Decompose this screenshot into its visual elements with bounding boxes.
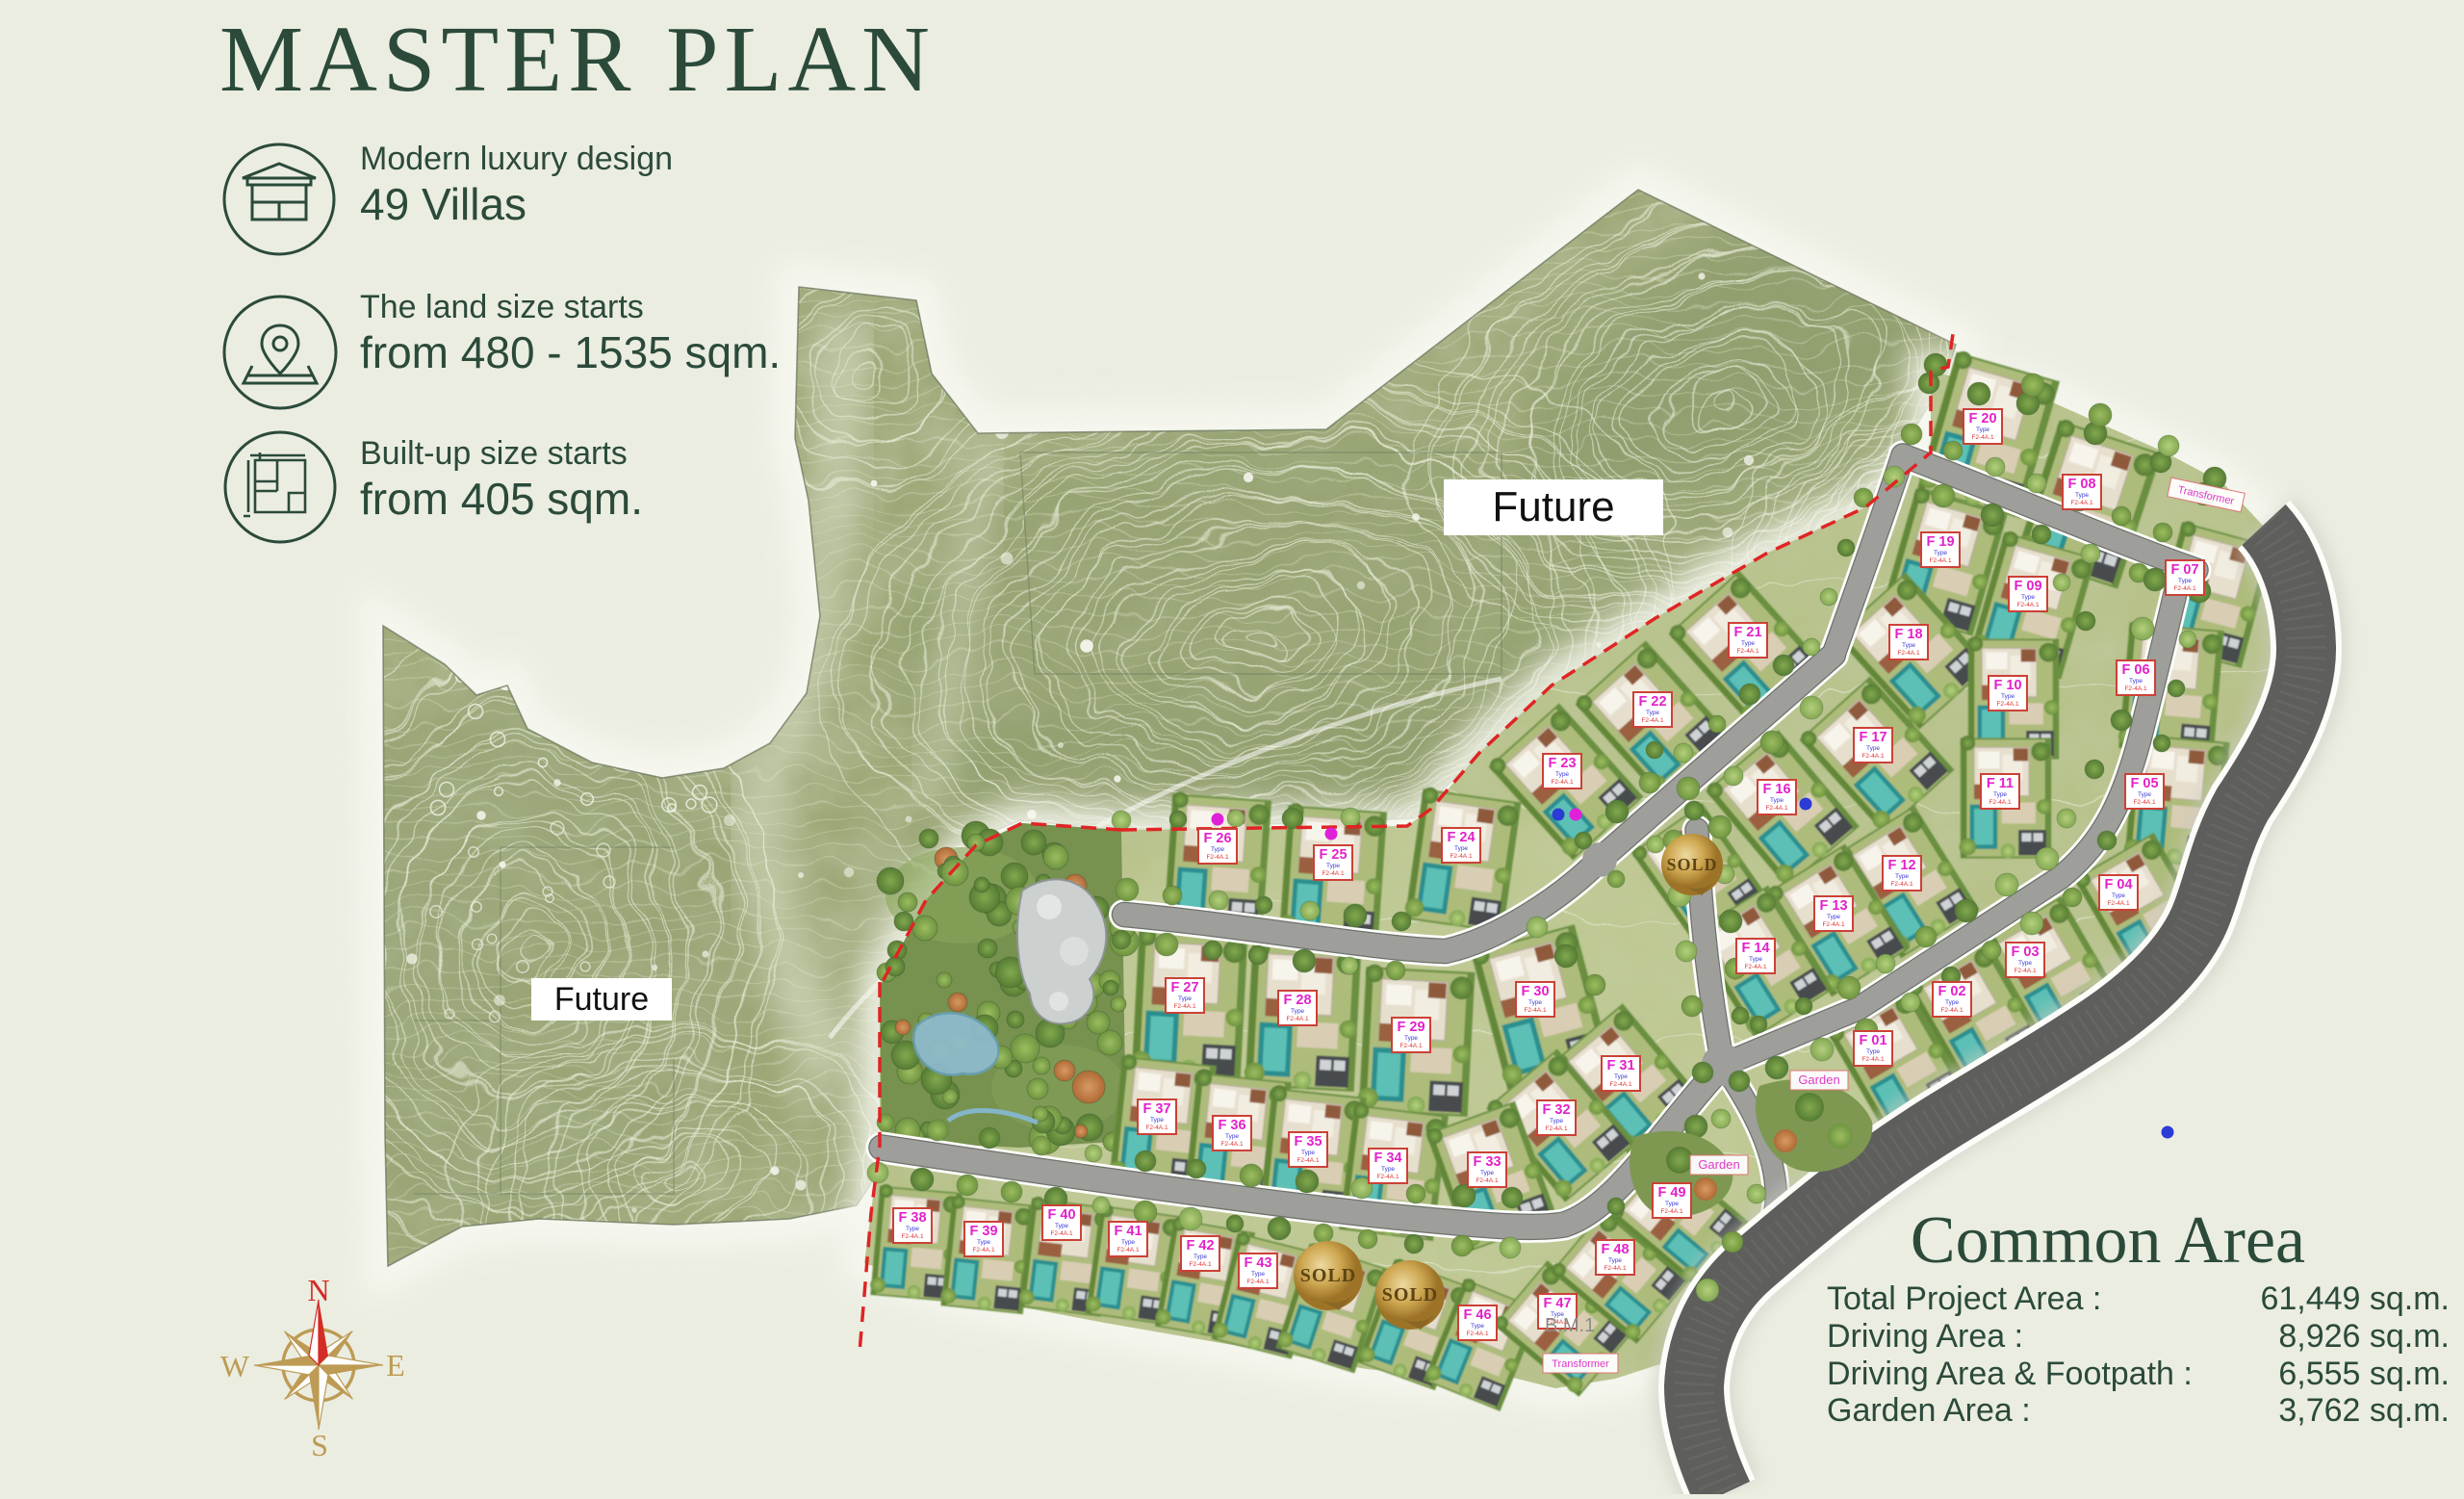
svg-text:F 28: F 28 [1283, 993, 1311, 1008]
svg-text:Type: Type [1866, 1048, 1880, 1055]
svg-text:F2-4A.1: F2-4A.1 [1604, 1265, 1627, 1272]
svg-text:F 48: F 48 [1601, 1242, 1629, 1257]
svg-text:F 25: F 25 [1319, 847, 1347, 863]
svg-text:F 46: F 46 [1463, 1307, 1491, 1323]
svg-text:Driving Area & Footpath :: Driving Area & Footpath : [1827, 1356, 2193, 1392]
svg-text:Type: Type [2001, 693, 2015, 700]
svg-text:F 34: F 34 [1373, 1150, 1401, 1166]
svg-text:F 21: F 21 [1733, 625, 1761, 640]
svg-text:Type: Type [1614, 1073, 1628, 1080]
svg-text:Garden Area :: Garden Area : [1827, 1392, 2031, 1429]
svg-text:Type: Type [1454, 845, 1468, 852]
svg-text:F 40: F 40 [1047, 1207, 1075, 1223]
svg-text:Type: Type [1251, 1271, 1265, 1278]
svg-text:Type: Type [2129, 678, 2143, 685]
svg-text:F2-4A.1: F2-4A.1 [2014, 968, 2037, 974]
svg-text:F2-4A.1: F2-4A.1 [1399, 1043, 1423, 1049]
svg-text:F2-4A.1: F2-4A.1 [2070, 500, 2093, 506]
svg-text:F 13: F 13 [1819, 898, 1847, 914]
svg-text:F2-4A.1: F2-4A.1 [1641, 717, 1664, 724]
svg-text:Type: Type [1404, 1035, 1418, 1042]
svg-text:3,762 sq.m.: 3,762 sq.m. [2278, 1392, 2450, 1429]
svg-text:Type: Type [1301, 1150, 1315, 1156]
svg-text:Type: Type [1528, 999, 1542, 1006]
svg-text:F 36: F 36 [1218, 1118, 1245, 1133]
svg-text:Type: Type [1741, 640, 1755, 647]
svg-text:F 05: F 05 [2130, 776, 2158, 791]
svg-text:6,555 sq.m.: 6,555 sq.m. [2278, 1356, 2450, 1392]
svg-text:F 10: F 10 [1993, 678, 2021, 693]
svg-text:SOLD: SOLD [1666, 855, 1717, 874]
svg-text:F2-4A.1: F2-4A.1 [1545, 1125, 1568, 1132]
svg-text:Type: Type [1895, 873, 1909, 880]
svg-text:F2-4A.1: F2-4A.1 [1822, 921, 1845, 928]
svg-text:Type: Type [2075, 492, 2089, 499]
svg-text:Type: Type [1150, 1117, 1164, 1124]
svg-text:F2-4A.1: F2-4A.1 [1989, 799, 2012, 806]
svg-text:F2-4A.1: F2-4A.1 [1929, 557, 1952, 564]
svg-text:Type: Type [1866, 745, 1880, 752]
svg-text:F2-4A.1: F2-4A.1 [1551, 779, 1574, 786]
svg-text:Driving Area :: Driving Area : [1827, 1318, 2023, 1355]
svg-text:F2-4A.1: F2-4A.1 [1940, 1007, 1963, 1014]
svg-text:W: W [220, 1349, 250, 1383]
svg-text:Type: Type [1555, 771, 1569, 778]
svg-text:F 35: F 35 [1294, 1134, 1322, 1150]
svg-text:Type: Type [1211, 846, 1224, 853]
svg-text:Type: Type [1827, 914, 1840, 920]
svg-text:F2-4A.1: F2-4A.1 [1376, 1174, 1399, 1180]
svg-text:61,449 sq.m.: 61,449 sq.m. [2260, 1280, 2450, 1317]
svg-text:F2-4A.1: F2-4A.1 [1116, 1247, 1140, 1253]
svg-text:F2-4A.1: F2-4A.1 [1286, 1016, 1309, 1022]
svg-text:Type: Type [2018, 960, 2032, 967]
svg-text:F2-4A.1: F2-4A.1 [1050, 1230, 1073, 1237]
svg-text:F2-4A.1: F2-4A.1 [2124, 685, 2147, 692]
svg-text:from 480 - 1535 sqm.: from 480 - 1535 sqm. [360, 327, 781, 377]
svg-text:F 42: F 42 [1186, 1238, 1214, 1253]
svg-text:SOLD: SOLD [1382, 1284, 1438, 1305]
svg-text:F2-4A.1: F2-4A.1 [1145, 1124, 1168, 1131]
svg-text:F2-4A.1: F2-4A.1 [1765, 805, 1788, 812]
svg-text:F 01: F 01 [1859, 1033, 1886, 1048]
svg-text:F 37: F 37 [1142, 1101, 1170, 1117]
svg-text:Type: Type [1902, 642, 1915, 649]
svg-text:F 43: F 43 [1244, 1255, 1271, 1271]
svg-text:Type: Type [1178, 995, 1192, 1002]
svg-text:F 04: F 04 [2104, 877, 2132, 892]
svg-text:F 16: F 16 [1762, 782, 1790, 797]
svg-text:F2-4A.1: F2-4A.1 [1450, 853, 1473, 860]
svg-text:F2-4A.1: F2-4A.1 [1322, 870, 1345, 877]
svg-text:F 20: F 20 [1968, 411, 1996, 426]
svg-text:F 27: F 27 [1170, 980, 1198, 995]
svg-text:F2-4A.1: F2-4A.1 [1890, 881, 1913, 888]
svg-text:Garden: Garden [1798, 1073, 1839, 1087]
svg-text:Type: Type [1934, 550, 1947, 556]
svg-text:Future: Future [1492, 483, 1614, 530]
svg-text:SOLD: SOLD [1300, 1265, 1356, 1286]
svg-text:E: E [386, 1348, 405, 1383]
svg-text:49 Villas: 49 Villas [360, 179, 526, 229]
svg-text:F 24: F 24 [1447, 830, 1475, 845]
svg-text:F 26: F 26 [1203, 831, 1231, 846]
svg-text:Type: Type [1193, 1253, 1207, 1260]
svg-text:F 49: F 49 [1657, 1185, 1685, 1201]
svg-text:F 12: F 12 [1887, 858, 1915, 873]
svg-text:Type: Type [1291, 1008, 1304, 1015]
svg-text:F2-4A.1: F2-4A.1 [1660, 1208, 1683, 1215]
svg-text:Type: Type [2112, 892, 2125, 899]
svg-text:Type: Type [1225, 1133, 1239, 1140]
svg-text:F2-4A.1: F2-4A.1 [1996, 701, 2019, 708]
svg-text:F2-4A.1: F2-4A.1 [1744, 964, 1767, 970]
svg-text:F 11: F 11 [1987, 776, 2014, 791]
svg-text:Type: Type [1749, 956, 1762, 963]
svg-text:F2-4A.1: F2-4A.1 [2016, 602, 2040, 608]
svg-text:Type: Type [2021, 594, 2035, 601]
svg-text:N: N [307, 1273, 329, 1307]
svg-text:Garden: Garden [1698, 1157, 1739, 1172]
svg-text:Total Project Area :: Total Project Area : [1827, 1280, 2101, 1317]
svg-text:F 47: F 47 [1543, 1296, 1571, 1311]
svg-text:F 22: F 22 [1638, 694, 1666, 710]
svg-text:F2-4A.1: F2-4A.1 [1971, 434, 1994, 441]
svg-text:MASTER PLAN: MASTER PLAN [219, 8, 936, 112]
svg-text:Common Area: Common Area [1911, 1203, 2305, 1278]
svg-text:F2-4A.1: F2-4A.1 [1524, 1007, 1547, 1014]
svg-text:8,926 sq.m.: 8,926 sq.m. [2278, 1318, 2450, 1355]
svg-text:F 02: F 02 [1938, 984, 1965, 999]
svg-text:F 18: F 18 [1894, 627, 1922, 642]
svg-text:Type: Type [1770, 797, 1784, 804]
svg-text:F 30: F 30 [1521, 984, 1549, 999]
svg-text:Future: Future [554, 981, 649, 1018]
svg-text:Type: Type [1381, 1166, 1395, 1173]
svg-text:F 03: F 03 [2011, 944, 2039, 960]
svg-text:F 17: F 17 [1859, 730, 1886, 745]
svg-text:S: S [311, 1428, 328, 1462]
svg-text:The land size starts: The land size starts [360, 289, 644, 325]
svg-text:Type: Type [1471, 1323, 1484, 1330]
svg-text:from 405 sqm.: from 405 sqm. [360, 474, 643, 524]
svg-text:F2-4A.1: F2-4A.1 [901, 1233, 924, 1240]
svg-text:Type: Type [1055, 1223, 1068, 1229]
svg-text:Type: Type [1993, 791, 2007, 798]
svg-text:Type: Type [906, 1226, 919, 1232]
svg-text:F2-4A.1: F2-4A.1 [1476, 1177, 1499, 1184]
svg-text:Type: Type [1550, 1118, 1563, 1124]
svg-text:F 29: F 29 [1397, 1020, 1424, 1035]
svg-text:F2-4A.1: F2-4A.1 [972, 1247, 995, 1253]
svg-text:Type: Type [1976, 426, 1989, 433]
svg-text:F2-4A.1: F2-4A.1 [2173, 585, 2196, 592]
svg-text:Type: Type [1646, 710, 1659, 716]
svg-text:F2-4A.1: F2-4A.1 [1173, 1003, 1196, 1010]
svg-text:Type: Type [1665, 1201, 1679, 1207]
svg-text:F2-4A.1: F2-4A.1 [1220, 1141, 1244, 1148]
svg-text:F 31: F 31 [1606, 1058, 1634, 1073]
svg-text:F2-4A.1: F2-4A.1 [1296, 1157, 1320, 1164]
svg-text:Type: Type [1945, 999, 1959, 1006]
svg-text:F2-4A.1: F2-4A.1 [1206, 854, 1229, 861]
svg-text:Type: Type [2138, 791, 2151, 798]
svg-text:F 19: F 19 [1926, 534, 1954, 550]
svg-text:F2-4A.1: F2-4A.1 [1466, 1331, 1489, 1337]
svg-text:Transformer: Transformer [1552, 1358, 1609, 1370]
svg-text:F 32: F 32 [1542, 1102, 1570, 1118]
svg-text:F 09: F 09 [2014, 579, 2041, 594]
svg-text:F2-4A.1: F2-4A.1 [1246, 1279, 1270, 1285]
svg-text:Built-up size starts: Built-up size starts [360, 435, 628, 472]
svg-text:F 08: F 08 [2067, 477, 2095, 492]
svg-text:F2-4A.1: F2-4A.1 [2107, 900, 2130, 907]
svg-text:F 38: F 38 [898, 1210, 926, 1226]
svg-text:Type: Type [2178, 578, 2192, 584]
svg-text:F 39: F 39 [969, 1224, 997, 1239]
svg-text:F 41: F 41 [1114, 1224, 1142, 1239]
svg-text:F2-4A.1: F2-4A.1 [1861, 753, 1885, 760]
svg-text:F2-4A.1: F2-4A.1 [1189, 1261, 1212, 1268]
svg-text:Type: Type [1121, 1239, 1135, 1246]
svg-text:F 14: F 14 [1741, 941, 1769, 956]
svg-text:F2-4A.1: F2-4A.1 [1609, 1081, 1632, 1088]
svg-text:F 23: F 23 [1548, 756, 1576, 771]
svg-text:Type: Type [1608, 1257, 1622, 1264]
svg-text:F 33: F 33 [1473, 1154, 1501, 1170]
svg-text:F2-4A.1: F2-4A.1 [2133, 799, 2156, 806]
svg-text:Type: Type [1326, 863, 1340, 869]
svg-text:Type: Type [977, 1239, 990, 1246]
svg-text:F2-4A.1: F2-4A.1 [1736, 648, 1759, 655]
svg-text:F2-4A.1: F2-4A.1 [1861, 1056, 1885, 1063]
svg-text:Type: Type [1480, 1170, 1494, 1176]
svg-text:F 07: F 07 [2170, 562, 2198, 578]
svg-text:F2-4A.1: F2-4A.1 [1897, 650, 1920, 657]
svg-text:Modern luxury design: Modern luxury design [360, 141, 673, 177]
svg-text:B.M.1: B.M.1 [1545, 1315, 1595, 1336]
svg-text:F 06: F 06 [2121, 662, 2149, 678]
